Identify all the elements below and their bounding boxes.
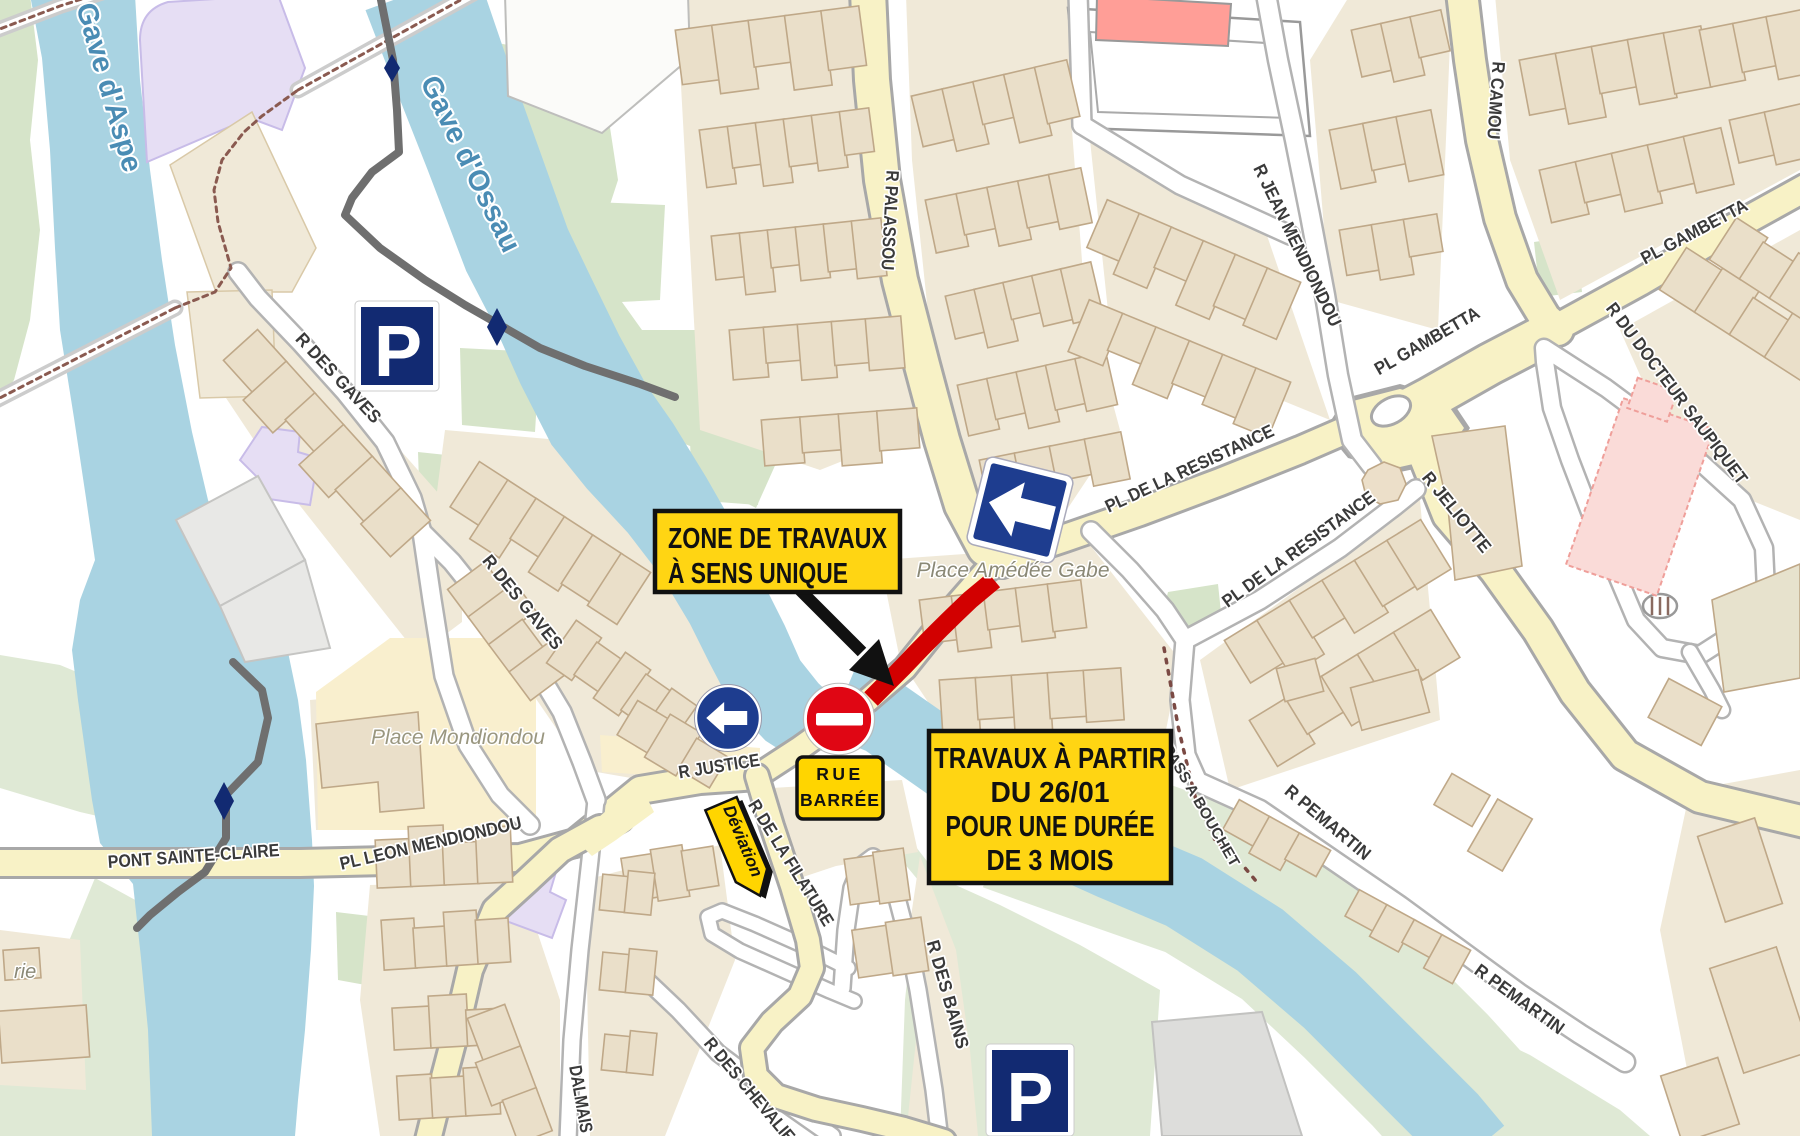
svg-text:RUE: RUE xyxy=(816,764,863,784)
svg-text:Place Mondiondou: Place Mondiondou xyxy=(371,726,545,749)
svg-text:P: P xyxy=(374,312,422,392)
svg-text:TRAVAUX À PARTIR: TRAVAUX À PARTIR xyxy=(934,741,1166,775)
svg-text:À SENS UNIQUE: À SENS UNIQUE xyxy=(668,556,848,590)
svg-text:DU 26/01: DU 26/01 xyxy=(991,777,1110,809)
svg-text:BARRÉE: BARRÉE xyxy=(800,789,880,810)
svg-text:DE 3 MOIS: DE 3 MOIS xyxy=(987,845,1114,877)
svg-text:rie: rie xyxy=(14,961,36,983)
svg-text:Place Amédée Gabe: Place Amédée Gabe xyxy=(916,559,1109,582)
svg-text:POUR UNE DURÉE: POUR UNE DURÉE xyxy=(946,809,1155,843)
svg-text:P: P xyxy=(1007,1058,1054,1136)
svg-text:ZONE DE TRAVAUX: ZONE DE TRAVAUX xyxy=(668,523,888,555)
